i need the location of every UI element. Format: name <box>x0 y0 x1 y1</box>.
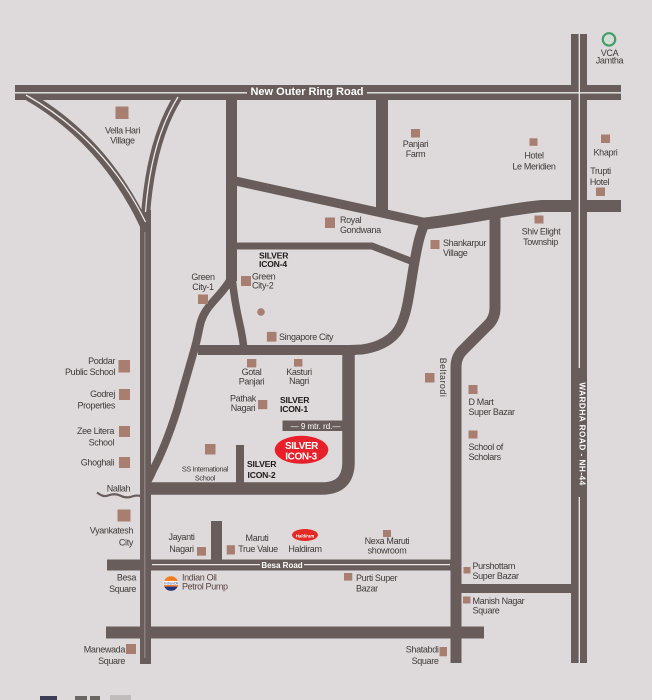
svg-text:School: School <box>89 438 115 448</box>
svg-text:Panjari: Panjari <box>239 377 265 387</box>
svg-text:Bazar: Bazar <box>356 584 378 594</box>
svg-text:D Mart: D Mart <box>469 397 495 407</box>
svg-text:Beltarodi: Beltarodi <box>438 358 448 398</box>
svg-text:Jayanti: Jayanti <box>168 532 194 542</box>
svg-text:Zee Litera: Zee Litera <box>77 426 114 436</box>
svg-text:Manewada: Manewada <box>84 645 126 655</box>
svg-text:Nagari: Nagari <box>231 403 256 413</box>
svg-text:Petrol Pump: Petrol Pump <box>182 582 228 592</box>
svg-text:Super Bazar: Super Bazar <box>473 571 520 581</box>
svg-text:Vyankatesh: Vyankatesh <box>90 526 134 536</box>
svg-text:IndianOil: IndianOil <box>164 582 178 586</box>
svg-text:SS International: SS International <box>182 465 229 474</box>
svg-text:Public School: Public School <box>65 367 115 377</box>
svg-text:City-2: City-2 <box>252 281 274 291</box>
svg-text:City: City <box>119 538 134 548</box>
svg-text:ICON-2: ICON-2 <box>248 470 276 480</box>
svg-text:Square: Square <box>412 656 439 666</box>
svg-text:Shankarpur: Shankarpur <box>443 238 486 248</box>
svg-text:Manish Nagar: Manish Nagar <box>473 596 525 606</box>
svg-text:Singapore City: Singapore City <box>279 332 334 342</box>
svg-text:School of: School of <box>469 442 504 452</box>
svg-text:WARDHA ROAD - NH-44: WARDHA ROAD - NH-44 <box>578 382 587 485</box>
svg-text:Royal: Royal <box>340 215 362 225</box>
svg-text:Jamtha: Jamtha <box>596 56 624 66</box>
svg-text:Ghoghali: Ghoghali <box>81 458 115 468</box>
svg-text:Trupti: Trupti <box>590 166 611 176</box>
svg-text:Super Bazar: Super Bazar <box>469 407 516 417</box>
svg-text:Panjari: Panjari <box>403 139 429 149</box>
svg-text:Township: Township <box>523 237 558 247</box>
svg-text:Village: Village <box>443 248 468 258</box>
svg-text:Purshottam: Purshottam <box>473 561 516 571</box>
svg-text:City-1: City-1 <box>192 282 214 292</box>
svg-text:Square: Square <box>473 606 500 616</box>
svg-text:True Value: True Value <box>238 544 278 554</box>
svg-text:ICON-4: ICON-4 <box>259 259 287 269</box>
svg-text:Hotel: Hotel <box>590 177 610 187</box>
svg-text:Shatabdi: Shatabdi <box>406 645 439 655</box>
svg-text:SILVER: SILVER <box>285 441 319 452</box>
svg-text:Godrej: Godrej <box>90 389 115 399</box>
svg-text:SILVER: SILVER <box>247 459 277 469</box>
svg-text:New Outer Ring Road: New Outer Ring Road <box>250 86 363 98</box>
svg-text:Le Meridien: Le Meridien <box>512 162 556 172</box>
svg-text:Village: Village <box>110 136 135 146</box>
svg-text:Green: Green <box>191 272 215 282</box>
svg-text:showroom: showroom <box>368 546 407 556</box>
svg-text:Haldiram: Haldiram <box>288 544 321 554</box>
svg-text:ICON-1: ICON-1 <box>280 404 308 414</box>
svg-text:Scholars: Scholars <box>469 452 502 462</box>
svg-text:Purti Super: Purti Super <box>356 573 398 583</box>
svg-text:Square: Square <box>98 656 125 666</box>
svg-text:Farm: Farm <box>406 149 426 159</box>
svg-text:Vella Hari: Vella Hari <box>105 126 140 136</box>
svg-text:School: School <box>195 474 216 483</box>
svg-text:Besa Road: Besa Road <box>261 561 302 570</box>
svg-text:Nexa Maruti: Nexa Maruti <box>365 536 410 546</box>
svg-text:Besa: Besa <box>117 573 136 583</box>
svg-text:Khapri: Khapri <box>594 148 618 158</box>
svg-text:Square: Square <box>109 584 136 594</box>
svg-text:Maruti: Maruti <box>246 533 269 543</box>
svg-text:Hotel: Hotel <box>524 150 544 160</box>
svg-text:— 9 mtr. rd.—: — 9 mtr. rd.— <box>291 422 341 431</box>
svg-text:Nagri: Nagri <box>289 376 309 386</box>
svg-text:ICON-3: ICON-3 <box>285 451 317 462</box>
svg-text:Shiv Elight: Shiv Elight <box>522 227 562 237</box>
svg-text:Nallah: Nallah <box>107 484 131 494</box>
svg-text:Gondwana: Gondwana <box>340 225 381 235</box>
svg-text:Haldiram: Haldiram <box>296 534 315 539</box>
svg-text:Poddar: Poddar <box>88 356 115 366</box>
svg-text:Nagari: Nagari <box>169 544 194 554</box>
svg-text:Properties: Properties <box>77 401 115 411</box>
